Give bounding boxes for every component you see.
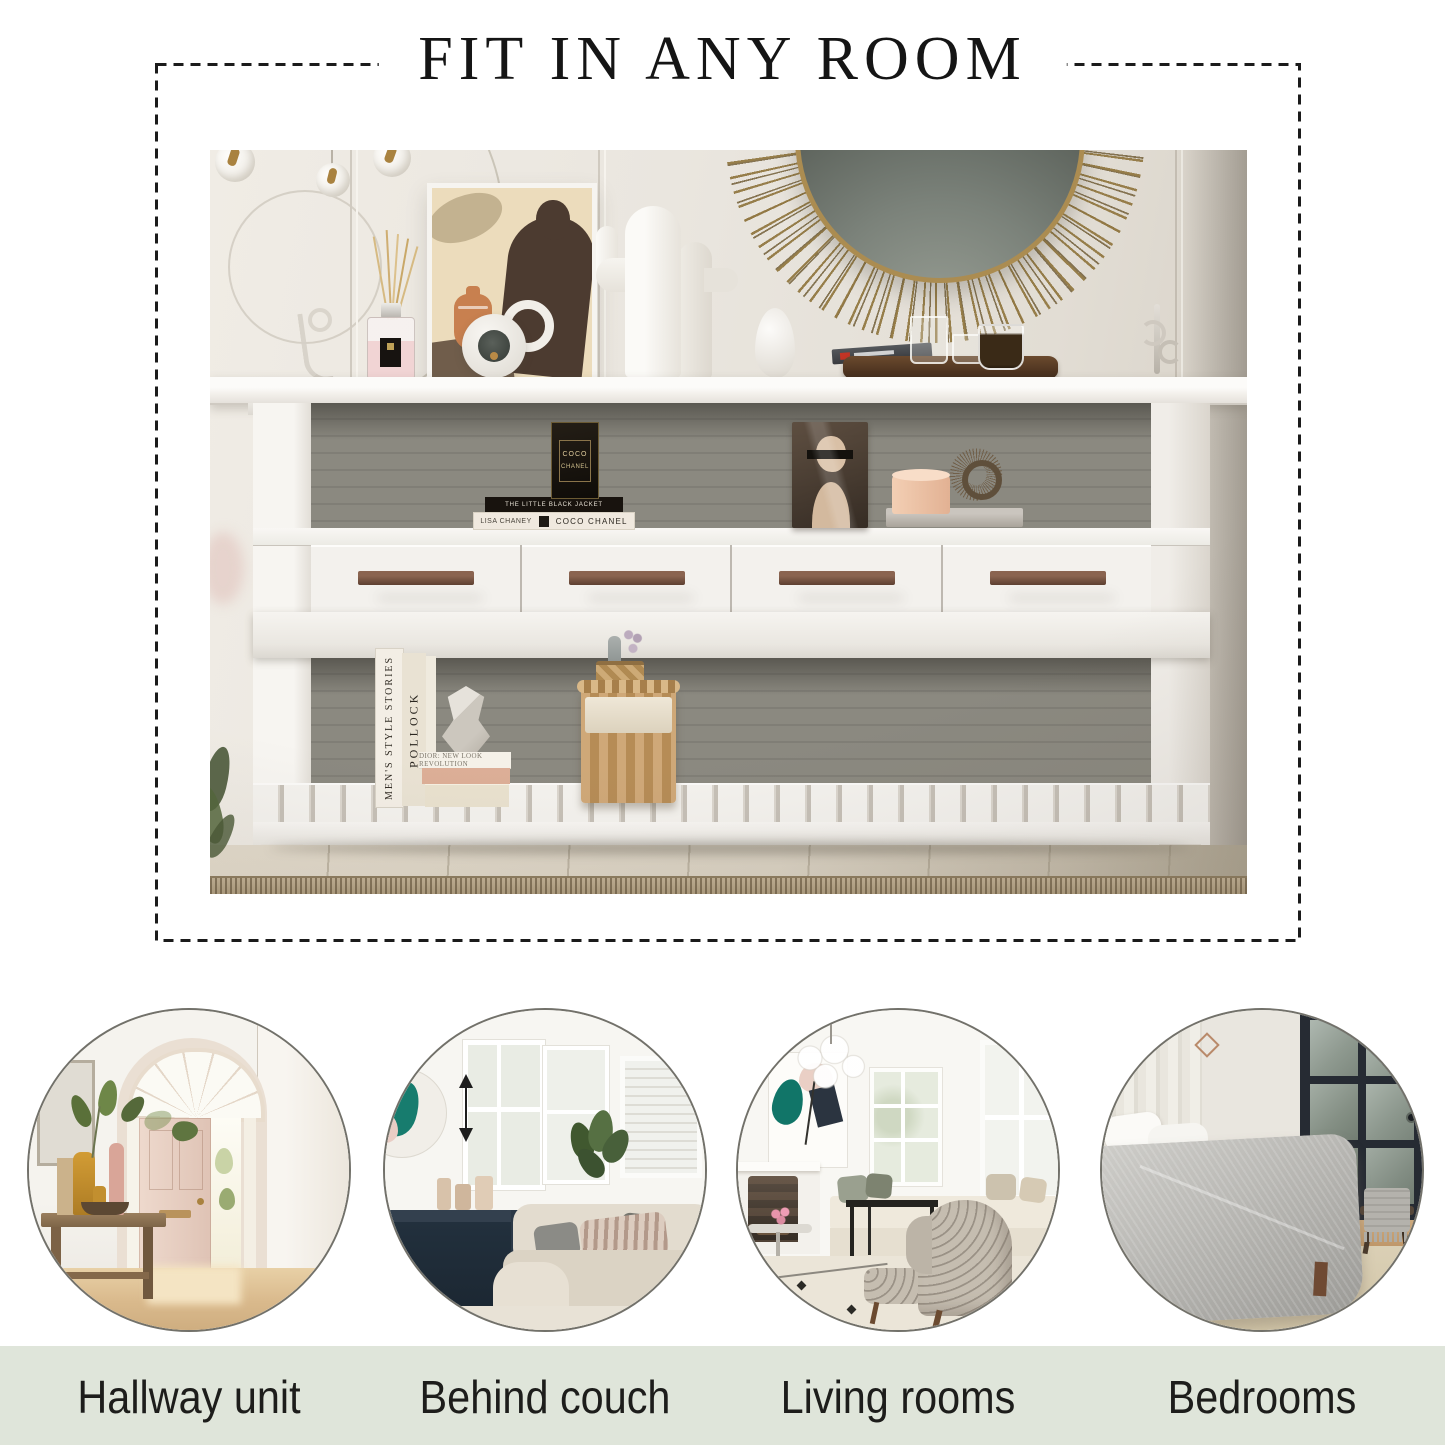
room-label-behind-couch: Behind couch xyxy=(420,1370,671,1424)
room-photo-behind-couch xyxy=(383,1008,707,1332)
seat-pillow xyxy=(1018,1176,1047,1203)
black-table-leg xyxy=(850,1207,854,1263)
sconce-cone xyxy=(459,1128,473,1142)
ottoman xyxy=(864,1268,924,1304)
wall-sconce xyxy=(465,1082,467,1130)
window-panes xyxy=(468,1045,540,1185)
wooden-bowl xyxy=(81,1202,129,1215)
door-knob xyxy=(197,1198,204,1205)
pink-flowers xyxy=(768,1206,794,1226)
door-pane xyxy=(1366,1084,1414,1140)
room-label-bedrooms: Bedrooms xyxy=(1168,1370,1357,1424)
throw-fringe xyxy=(1364,1232,1410,1242)
throw-blanket xyxy=(1364,1188,1410,1232)
fireplace-mantel xyxy=(736,1162,820,1171)
door-panel xyxy=(149,1130,173,1190)
seat-pillow xyxy=(865,1173,893,1199)
bench-leg xyxy=(143,1227,153,1299)
navy-console-top xyxy=(383,1210,525,1222)
room-label-hallway-unit: Hallway unit xyxy=(77,1370,300,1424)
bed-leg xyxy=(1313,1262,1328,1297)
hero-photo-console-table: LISA CHANEY COCO CHANEL THE LITTLE BLACK… xyxy=(210,150,1247,894)
room-photo-hallway xyxy=(27,1008,351,1332)
page-title: FIT IN ANY ROOM xyxy=(378,24,1066,95)
photo-vignette xyxy=(210,150,1247,894)
window xyxy=(463,1040,545,1190)
door-pane xyxy=(1310,1020,1358,1076)
sconce-cone xyxy=(459,1074,473,1088)
seat-pillow xyxy=(986,1174,1016,1200)
open-door-gap xyxy=(209,1118,241,1270)
bench-crossbar xyxy=(55,1272,149,1279)
wing-chair xyxy=(918,1200,1012,1316)
door-sidelight xyxy=(244,1118,256,1270)
console-vase xyxy=(437,1178,451,1210)
room-photo-living-rooms xyxy=(736,1008,1060,1332)
room-floor xyxy=(383,1306,707,1332)
rustic-bench xyxy=(41,1213,166,1227)
room-label-living-rooms: Living rooms xyxy=(781,1370,1016,1424)
product-infographic: FIT IN ANY ROOM xyxy=(0,0,1445,1445)
door-sidelight xyxy=(127,1118,139,1270)
outdoor-greenery xyxy=(215,1148,233,1174)
door-knob xyxy=(1408,1114,1415,1121)
wing-chair-wing xyxy=(906,1216,932,1274)
black-side-table xyxy=(846,1200,938,1207)
bed-quilt xyxy=(1100,1133,1365,1327)
bench-leg xyxy=(51,1227,61,1303)
window-blinds xyxy=(620,1056,702,1178)
room-photo-bedrooms xyxy=(1100,1008,1424,1332)
outdoor-greenery xyxy=(219,1188,235,1210)
chandelier-cord xyxy=(830,1010,832,1044)
door-pane xyxy=(1310,1084,1358,1140)
black-table-leg xyxy=(868,1207,871,1255)
door-pane xyxy=(1366,1020,1414,1076)
door-light-patch xyxy=(147,1266,241,1304)
console-vase xyxy=(475,1176,493,1210)
console-vase xyxy=(455,1184,471,1210)
window xyxy=(870,1068,942,1186)
